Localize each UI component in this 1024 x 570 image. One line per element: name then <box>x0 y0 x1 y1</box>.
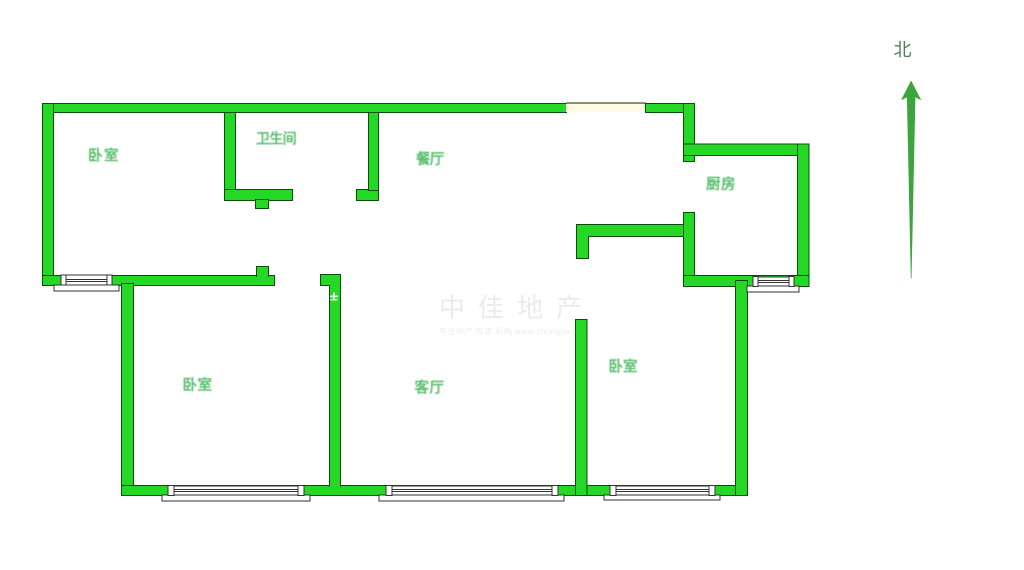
svg-text:中佳地产 连锁 机构 www.zhongjia.com: 中佳地产 连锁 机构 www.zhongjia.com <box>439 326 589 336</box>
svg-text:客厅: 客厅 <box>414 379 445 397</box>
svg-text:北: 北 <box>894 40 912 60</box>
svg-text:卧室: 卧室 <box>183 376 213 394</box>
svg-text:卧室: 卧室 <box>88 147 120 165</box>
svg-text:卫生间: 卫生间 <box>256 131 297 147</box>
svg-text:中佳地产: 中佳地产 <box>439 293 595 323</box>
svg-text:厨房: 厨房 <box>706 175 736 193</box>
svg-text:餐厅: 餐厅 <box>416 150 445 168</box>
svg-text:卧室: 卧室 <box>609 358 638 376</box>
